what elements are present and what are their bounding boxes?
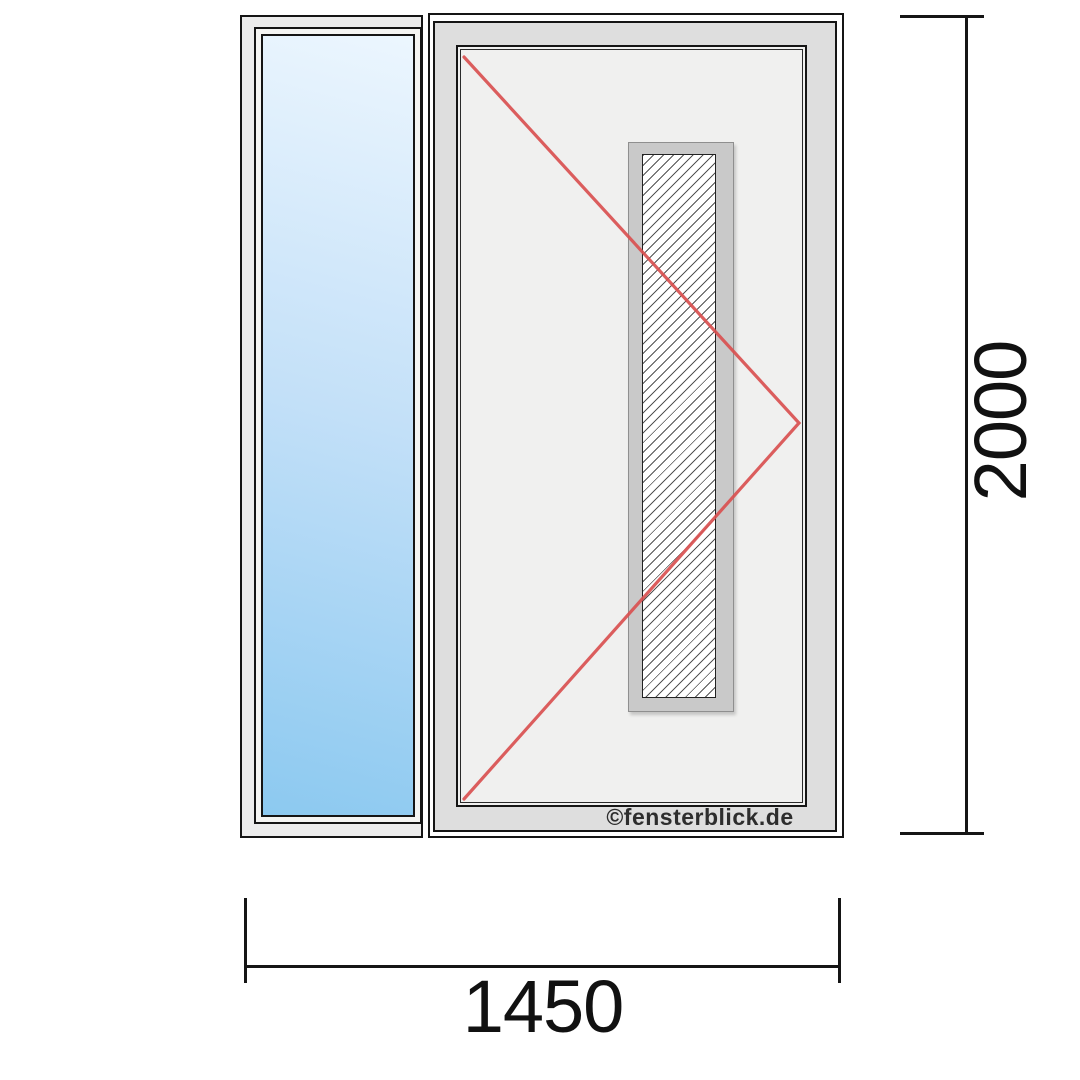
sidelight-glass (261, 34, 415, 817)
door-configuration-diagram: ©fensterblick.de 2000 1450 (0, 0, 1080, 1080)
door-glass-hatched-panel (642, 154, 716, 698)
height-dimension-tick-bottom (900, 832, 984, 835)
height-dimension-tick-top (900, 15, 984, 18)
width-dimension-tick-left (244, 898, 247, 983)
height-dimension-label: 2000 (964, 341, 1038, 502)
watermark-text: ©fensterblick.de (600, 804, 800, 830)
width-dimension-label: 1450 (463, 970, 624, 1044)
door-glass-surround (628, 142, 734, 712)
width-dimension-tick-right (838, 898, 841, 983)
